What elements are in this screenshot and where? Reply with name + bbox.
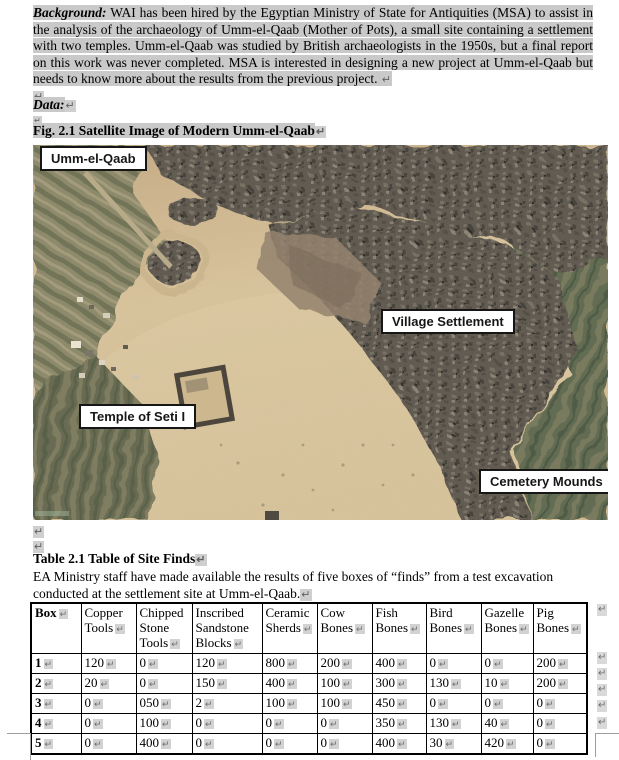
table-cell: 5↵	[31, 734, 81, 755]
table-cell: 450↵	[372, 694, 426, 714]
table-cell: 420↵	[481, 734, 533, 755]
table-cell: 0↵	[192, 734, 262, 755]
cell-end-mark: ↵	[204, 699, 214, 709]
table-cell: 40↵	[481, 714, 533, 734]
cell-end-mark: ↵	[342, 659, 352, 669]
table-cell: 2↵	[192, 694, 262, 714]
map-label: Village Settlement	[381, 309, 515, 334]
table-intro: EA Ministry staff have made available th…	[33, 569, 593, 603]
table-cell: 0↵	[81, 714, 136, 734]
table-cell: 120↵	[81, 654, 136, 674]
background-lead: Background:	[33, 5, 107, 20]
table-cell: 0↵	[136, 674, 192, 694]
table-cell: 0↵	[262, 714, 317, 734]
paragraph-mark: ↵	[195, 554, 206, 566]
cell-end-mark: ↵	[342, 699, 352, 709]
table-cell: 0↵	[426, 654, 481, 674]
table-cell: 350↵	[372, 714, 426, 734]
cell-end-mark: ↵	[44, 739, 54, 749]
table-cell: 0↵	[533, 714, 587, 734]
cell-end-mark: ↵	[274, 719, 284, 729]
table-caption: Table 2.1 Table of Site Finds	[33, 551, 195, 566]
cell-end-mark: ↵	[287, 679, 297, 689]
table-intro-text: EA Ministry staff have made available th…	[33, 569, 553, 601]
cell-end-mark: ↵	[100, 679, 110, 689]
cell-end-mark: ↵	[161, 699, 171, 709]
cell-end-mark: ↵	[287, 659, 297, 669]
table-cell: 30↵	[426, 734, 481, 755]
table-header-cell: Pig Bones↵	[533, 603, 587, 654]
cell-end-mark: ↵	[397, 659, 407, 669]
figure-caption-line: Fig. 2.1 Satellite Image of Modern Umm-e…	[33, 123, 326, 139]
table-header-cell: Chipped Stone Tools↵	[136, 603, 192, 654]
cell-end-mark: ↵	[161, 739, 171, 749]
cell-end-mark: ↵	[397, 679, 407, 689]
satellite-map-art	[33, 145, 608, 520]
map-label: Cemetery Mounds	[479, 469, 608, 494]
cell-end-mark: ↵	[451, 719, 461, 729]
satellite-image: Umm-el-QaabVillage SettlementTemple of S…	[33, 145, 608, 520]
cell-end-mark: ↵	[500, 679, 510, 689]
cell-end-mark: ↵	[217, 659, 227, 669]
cell-end-mark: ↵	[204, 739, 214, 749]
cell-end-mark: ↵	[464, 624, 474, 634]
cell-end-mark: ↵	[148, 659, 158, 669]
cell-end-mark: ↵	[445, 739, 455, 749]
table-row: 1↵120↵0↵120↵800↵200↵400↵0↵0↵200↵	[31, 654, 587, 674]
paragraph-mark: ↵	[33, 526, 44, 538]
finds-table: Box↵Copper Tools↵Chipped Stone Tools↵Ins…	[30, 602, 588, 755]
cell-end-mark: ↵	[500, 719, 510, 729]
cell-end-mark: ↵	[558, 679, 568, 689]
table-header-cell: Box↵	[31, 603, 81, 654]
cell-end-mark: ↵	[93, 719, 103, 729]
cell-end-mark: ↵	[571, 624, 581, 634]
margin-crop-mark	[7, 733, 30, 734]
cell-end-mark: ↵	[410, 624, 420, 634]
table-cell: 0↵	[81, 734, 136, 755]
table-cell: 20↵	[81, 674, 136, 694]
table-header-cell: Fish Bones↵	[372, 603, 426, 654]
table-row: 5↵0↵400↵0↵0↵0↵400↵30↵420↵0↵	[31, 734, 587, 755]
cell-end-mark: ↵	[329, 719, 339, 729]
table-cell: 1↵	[31, 654, 81, 674]
paragraph-mark: ↵	[315, 126, 326, 138]
row-end-mark: ↵	[597, 684, 607, 696]
table-cell: 100↵	[136, 714, 192, 734]
cell-end-mark: ↵	[161, 719, 171, 729]
background-paragraph: Background: WAI has been hired by the Eg…	[33, 5, 593, 89]
row-end-mark: ↵	[597, 717, 607, 729]
cell-end-mark: ↵	[106, 659, 116, 669]
table-cell: 200↵	[533, 674, 587, 694]
row-end-mark: ↵	[597, 668, 607, 680]
cell-end-mark: ↵	[303, 624, 313, 634]
map-label: Umm-el-Qaab	[40, 146, 147, 171]
figure-caption: Fig. 2.1 Satellite Image of Modern Umm-e…	[33, 123, 315, 138]
table-header-cell: Cow Bones↵	[317, 603, 372, 654]
cell-end-mark: ↵	[44, 719, 54, 729]
table-header-cell: Inscribed Sandstone Blocks↵	[192, 603, 262, 654]
table-cell: 0↵	[481, 654, 533, 674]
row-end-mark: ↵	[597, 604, 607, 616]
cell-end-mark: ↵	[438, 659, 448, 669]
cell-end-mark: ↵	[519, 624, 529, 634]
cell-end-mark: ↵	[342, 679, 352, 689]
table-cell: 200↵	[533, 654, 587, 674]
cell-end-mark: ↵	[217, 679, 227, 689]
table-cell: 100↵	[317, 694, 372, 714]
table-cell: 300↵	[372, 674, 426, 694]
table-cell: 3↵	[31, 694, 81, 714]
cell-end-mark: ↵	[545, 699, 555, 709]
cell-end-mark: ↵	[93, 739, 103, 749]
cell-end-mark: ↵	[44, 659, 54, 669]
table-header-cell: Ceramic Sherds↵	[262, 603, 317, 654]
table-row: 2↵20↵0↵150↵400↵100↵300↵130↵10↵200↵	[31, 674, 587, 694]
cell-end-mark: ↵	[355, 624, 365, 634]
cell-end-mark: ↵	[274, 739, 284, 749]
table-cell: 200↵	[317, 654, 372, 674]
table-cell: 2↵	[31, 674, 81, 694]
margin-crop-mark	[30, 733, 31, 760]
cell-end-mark: ↵	[234, 639, 244, 649]
cell-end-mark: ↵	[115, 624, 125, 634]
table-row: 4↵0↵100↵0↵0↵0↵350↵130↵40↵0↵	[31, 714, 587, 734]
cell-end-mark: ↵	[558, 659, 568, 669]
table-cell: 400↵	[136, 734, 192, 755]
cell-end-mark: ↵	[451, 679, 461, 689]
paragraph-mark: ↵	[381, 74, 392, 86]
cell-end-mark: ↵	[204, 719, 214, 729]
table-cell: 0↵	[481, 694, 533, 714]
map-label: Temple of Seti I	[79, 404, 196, 429]
table-cell: 120↵	[192, 654, 262, 674]
table-cell: 400↵	[372, 734, 426, 755]
cell-end-mark: ↵	[329, 739, 339, 749]
data-label-line: Data:↵	[33, 97, 76, 115]
table-cell: 0↵	[262, 734, 317, 755]
table-cell: 800↵	[262, 654, 317, 674]
cell-end-mark: ↵	[287, 699, 297, 709]
cell-end-mark: ↵	[397, 699, 407, 709]
table-cell: 0↵	[317, 734, 372, 755]
cell-end-mark: ↵	[148, 679, 158, 689]
table-cell: 100↵	[262, 694, 317, 714]
table-cell: 130↵	[426, 674, 481, 694]
paragraph-mark: ↵	[300, 589, 311, 601]
cell-end-mark: ↵	[397, 739, 407, 749]
cell-end-mark: ↵	[506, 739, 516, 749]
table-cell: 100↵	[317, 674, 372, 694]
table-cell: 0↵	[81, 694, 136, 714]
table-cell: 130↵	[426, 714, 481, 734]
table-header-cell: Copper Tools↵	[81, 603, 136, 654]
cell-end-mark: ↵	[93, 699, 103, 709]
cell-end-mark: ↵	[170, 639, 180, 649]
document-page: Background: WAI has been hired by the Eg…	[0, 0, 619, 760]
margin-crop-mark	[595, 733, 619, 734]
table-cell: 0↵	[533, 734, 587, 755]
table-header-cell: Gazelle Bones↵	[481, 603, 533, 654]
background-body: WAI has been hired by the Egyptian Minis…	[33, 5, 593, 86]
row-end-mark: ↵	[597, 700, 607, 712]
cell-end-mark: ↵	[493, 659, 503, 669]
table-header-cell: Bird Bones↵	[426, 603, 481, 654]
table-cell: 0↵	[533, 694, 587, 714]
table-cell: 0↵	[317, 714, 372, 734]
table-cell: 050↵	[136, 694, 192, 714]
cell-end-mark: ↵	[545, 739, 555, 749]
table-caption-line: Table 2.1 Table of Site Finds↵	[33, 551, 207, 567]
table-cell: 150↵	[192, 674, 262, 694]
table-cell: 10↵	[481, 674, 533, 694]
paragraph-mark: ↵	[65, 100, 76, 112]
cell-end-mark: ↵	[44, 699, 54, 709]
cell-end-mark: ↵	[59, 609, 69, 619]
table-cell: 0↵	[426, 694, 481, 714]
table-cell: 400↵	[372, 654, 426, 674]
table-cell: 0↵	[192, 714, 262, 734]
cell-end-mark: ↵	[44, 679, 54, 689]
cell-end-mark: ↵	[493, 699, 503, 709]
cell-end-mark: ↵	[397, 719, 407, 729]
row-end-mark: ↵	[597, 652, 607, 664]
data-label: Data:	[33, 97, 65, 112]
table-cell: 400↵	[262, 674, 317, 694]
cell-end-mark: ↵	[545, 719, 555, 729]
table-cell: 4↵	[31, 714, 81, 734]
margin-crop-mark	[595, 733, 596, 757]
cell-end-mark: ↵	[438, 699, 448, 709]
table-row: 3↵0↵050↵2↵100↵100↵450↵0↵0↵0↵	[31, 694, 587, 714]
table-cell: 0↵	[136, 654, 192, 674]
